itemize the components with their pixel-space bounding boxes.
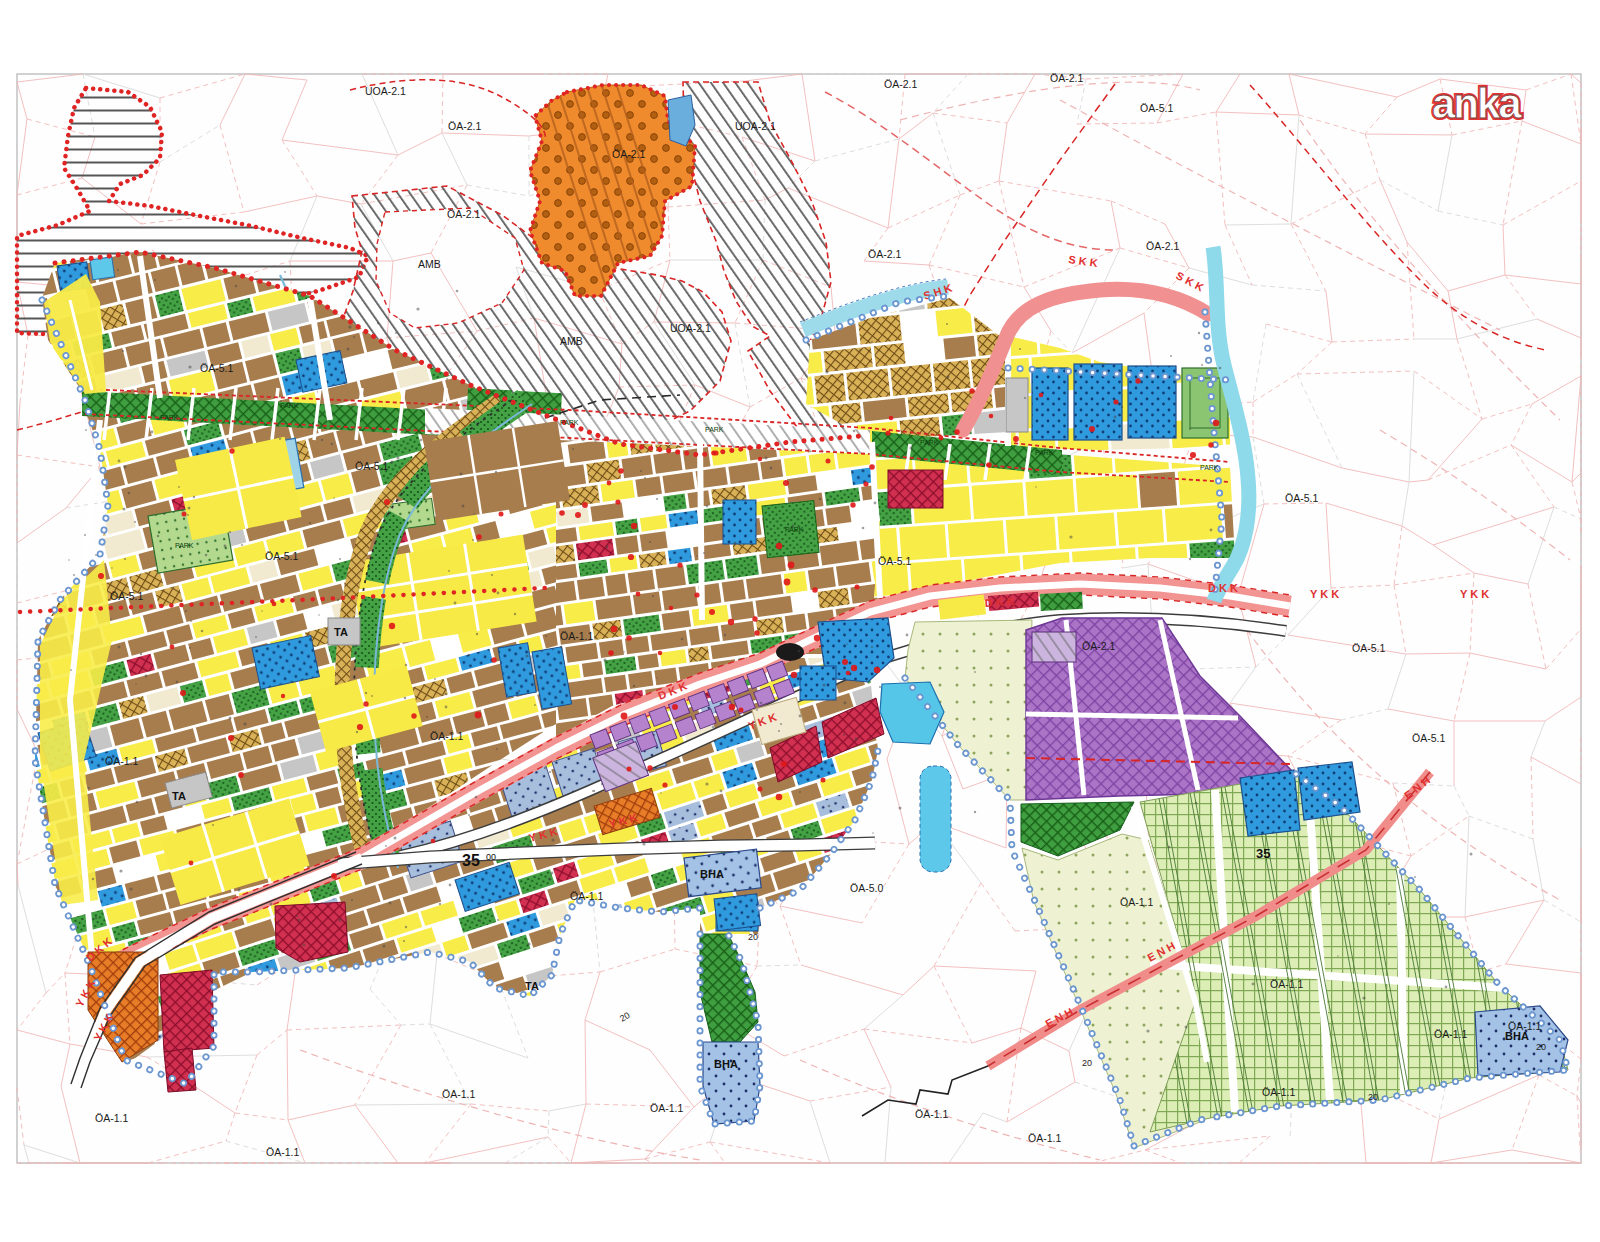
- svg-text:anka: anka: [1432, 80, 1522, 127]
- svg-text:20: 20: [748, 932, 758, 942]
- svg-text:AMB: AMB: [418, 258, 441, 270]
- svg-text:20: 20: [1082, 1058, 1092, 1068]
- svg-text:ÖA-1.1: ÖA-1.1: [95, 1112, 128, 1124]
- svg-text:PARK: PARK: [1200, 464, 1219, 471]
- svg-text:ÖA-5.1: ÖA-5.1: [1140, 102, 1173, 114]
- svg-text:ÖA-5.1: ÖA-5.1: [1412, 732, 1445, 744]
- svg-text:PARK: PARK: [1035, 449, 1054, 456]
- svg-text:ÖA-1.1: ÖA-1.1: [915, 1108, 948, 1120]
- svg-text:TA: TA: [172, 790, 186, 802]
- svg-text:PARK: PARK: [560, 419, 579, 426]
- svg-text:ÖA-1.1: ÖA-1.1: [1120, 896, 1153, 908]
- svg-text:PARK: PARK: [785, 526, 804, 533]
- svg-text:PARK: PARK: [160, 414, 179, 421]
- svg-text:ÖA-2.1: ÖA-2.1: [868, 248, 901, 260]
- svg-text:ÖA-1.1: ÖA-1.1: [1270, 978, 1303, 990]
- svg-text:ÖA-2.1: ÖA-2.1: [884, 78, 917, 90]
- svg-text:ÖA-5.1: ÖA-5.1: [1285, 492, 1318, 504]
- svg-text:ÖA-5.0: ÖA-5.0: [850, 882, 883, 894]
- svg-text:ÖA-1.1: ÖA-1.1: [650, 1102, 683, 1114]
- svg-text:UOA-2.1: UOA-2.1: [735, 120, 776, 132]
- svg-text:ÖA-5.1: ÖA-5.1: [878, 555, 911, 567]
- svg-text:BHA: BHA: [714, 1058, 738, 1070]
- svg-text:PARK: PARK: [920, 439, 939, 446]
- svg-text:Y K K: Y K K: [1460, 588, 1489, 600]
- svg-text:20: 20: [1368, 1092, 1378, 1102]
- svg-text:PARK: PARK: [175, 542, 194, 549]
- svg-text:PARK: PARK: [705, 426, 724, 433]
- svg-text:00: 00: [486, 852, 496, 862]
- svg-text:ÖA-1.1: ÖA-1.1: [1028, 1132, 1061, 1144]
- svg-text:ÖA-1.1: ÖA-1.1: [560, 630, 593, 642]
- svg-text:AMB: AMB: [560, 335, 583, 347]
- svg-text:ÖA-2.1: ÖA-2.1: [1082, 640, 1115, 652]
- svg-text:ÖA-1.1: ÖA-1.1: [442, 1088, 475, 1100]
- svg-text:Y K K: Y K K: [1310, 588, 1339, 600]
- svg-text:20: 20: [1536, 1042, 1546, 1052]
- svg-text:D K K: D K K: [1208, 582, 1238, 594]
- svg-text:ÖA-1.1: ÖA-1.1: [1262, 1086, 1295, 1098]
- svg-text:D K K: D K K: [984, 595, 1015, 609]
- svg-text:ÖA-2.1: ÖA-2.1: [1146, 240, 1179, 252]
- svg-text:ÖA-1.1: ÖA-1.1: [1434, 1028, 1467, 1040]
- svg-text:ÖA-2.1: ÖA-2.1: [448, 120, 481, 132]
- svg-text:ÖA-5.1: ÖA-5.1: [265, 550, 298, 562]
- svg-text:ÖA-5.1: ÖA-5.1: [1352, 642, 1385, 654]
- svg-text:TA: TA: [525, 980, 539, 992]
- svg-text:UOA-2.1: UOA-2.1: [365, 85, 406, 97]
- svg-text:ÖA-5.1: ÖA-5.1: [200, 362, 233, 374]
- svg-text:PARK: PARK: [280, 402, 299, 409]
- svg-text:ÖA-2.1: ÖA-2.1: [612, 148, 645, 160]
- svg-text:35: 35: [1256, 846, 1270, 861]
- svg-text:ÖA-1.1: ÖA-1.1: [570, 890, 603, 902]
- svg-text:TA: TA: [334, 626, 348, 638]
- svg-text:ÖA-5.1: ÖA-5.1: [355, 460, 388, 472]
- svg-text:ÖA-2.1: ÖA-2.1: [447, 208, 480, 220]
- svg-text:ÖA-1.1: ÖA-1.1: [430, 730, 463, 742]
- svg-text:ÖA-1.1: ÖA-1.1: [266, 1146, 299, 1158]
- svg-text:ÖA-1.1: ÖA-1.1: [105, 755, 138, 767]
- svg-text:ÖA-5.1: ÖA-5.1: [110, 590, 143, 602]
- svg-text:BHA: BHA: [1505, 1030, 1529, 1042]
- svg-text:UOA-2.1: UOA-2.1: [670, 322, 711, 334]
- svg-text:BHA: BHA: [700, 868, 724, 880]
- svg-text:ÖA-2.1: ÖA-2.1: [1050, 72, 1083, 84]
- svg-text:35: 35: [462, 852, 480, 869]
